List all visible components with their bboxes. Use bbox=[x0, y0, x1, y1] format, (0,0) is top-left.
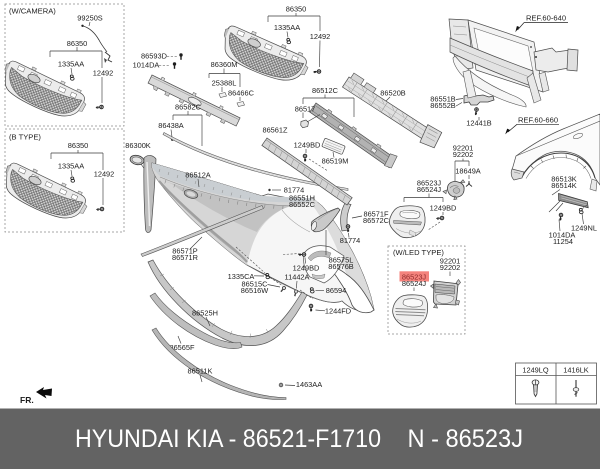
svg-text:11442A: 11442A bbox=[285, 273, 310, 282]
svg-text:86571R: 86571R bbox=[172, 253, 198, 262]
svg-text:(W/LED TYPE): (W/LED TYPE) bbox=[393, 248, 444, 257]
svg-text:1335AA: 1335AA bbox=[58, 60, 84, 69]
svg-text:1249BD: 1249BD bbox=[293, 264, 320, 273]
svg-text:86519M: 86519M bbox=[322, 157, 349, 166]
svg-text:1463AA: 1463AA bbox=[296, 380, 322, 389]
svg-text:1335AA: 1335AA bbox=[58, 161, 84, 170]
svg-text:86520B: 86520B bbox=[380, 89, 406, 98]
svg-text:86350: 86350 bbox=[67, 39, 88, 48]
svg-text:(B TYPE): (B TYPE) bbox=[9, 133, 41, 142]
svg-text:86300K: 86300K bbox=[125, 141, 151, 150]
svg-text:86561Z: 86561Z bbox=[262, 126, 288, 135]
svg-text:81774: 81774 bbox=[340, 236, 361, 245]
svg-text:1249BD: 1249BD bbox=[430, 204, 457, 213]
svg-text:1416LK: 1416LK bbox=[563, 365, 589, 374]
svg-text:86517: 86517 bbox=[295, 105, 316, 114]
svg-text:86350: 86350 bbox=[68, 141, 89, 150]
svg-text:86576B: 86576B bbox=[328, 262, 354, 271]
svg-text:86524J: 86524J bbox=[402, 279, 427, 288]
svg-text:1249LQ: 1249LQ bbox=[522, 365, 549, 374]
svg-text:1014DA: 1014DA bbox=[133, 61, 160, 70]
svg-text:N - 86523J: N - 86523J bbox=[408, 425, 524, 453]
svg-text:86552B: 86552B bbox=[430, 101, 456, 110]
svg-text:86360M: 86360M bbox=[211, 60, 238, 69]
svg-text:11254: 11254 bbox=[553, 237, 573, 246]
svg-text:HYUNDAI KIA - 86521-F1710: HYUNDAI KIA - 86521-F1710 bbox=[75, 425, 381, 453]
svg-text:99250S: 99250S bbox=[77, 14, 103, 23]
svg-text:86511K: 86511K bbox=[188, 367, 213, 376]
svg-text:12492: 12492 bbox=[93, 69, 114, 78]
svg-text:86525H: 86525H bbox=[192, 309, 218, 318]
svg-text:12492: 12492 bbox=[94, 170, 115, 179]
svg-text:86582C: 86582C bbox=[175, 103, 202, 112]
svg-text:86512C: 86512C bbox=[312, 86, 339, 95]
svg-text:1244FD: 1244FD bbox=[325, 307, 351, 316]
svg-text:86594: 86594 bbox=[326, 286, 347, 295]
svg-text:1335AA: 1335AA bbox=[274, 23, 300, 32]
svg-text:86572C: 86572C bbox=[363, 216, 390, 225]
svg-text:18649A: 18649A bbox=[455, 167, 481, 176]
svg-text:92202: 92202 bbox=[453, 150, 474, 159]
svg-text:86552C: 86552C bbox=[289, 200, 316, 209]
svg-text:REF.60-660: REF.60-660 bbox=[518, 115, 558, 124]
svg-text:86516W: 86516W bbox=[241, 286, 269, 295]
svg-text:REF.60-640: REF.60-640 bbox=[526, 14, 566, 23]
svg-text:86350: 86350 bbox=[286, 5, 307, 14]
svg-text:12492: 12492 bbox=[310, 32, 331, 41]
svg-text:86514K: 86514K bbox=[551, 181, 577, 190]
svg-text:86466C: 86466C bbox=[228, 89, 255, 98]
svg-text:92202: 92202 bbox=[440, 263, 461, 272]
svg-text:FR.: FR. bbox=[20, 395, 34, 405]
svg-text:1249BD: 1249BD bbox=[294, 141, 321, 150]
svg-text:86593D: 86593D bbox=[141, 52, 167, 61]
svg-text:(W/CAMERA): (W/CAMERA) bbox=[9, 7, 56, 16]
svg-text:86438A: 86438A bbox=[158, 121, 184, 130]
svg-text:86524J: 86524J bbox=[417, 185, 442, 194]
svg-text:25388L: 25388L bbox=[212, 79, 237, 88]
svg-text:86512A: 86512A bbox=[185, 171, 211, 180]
